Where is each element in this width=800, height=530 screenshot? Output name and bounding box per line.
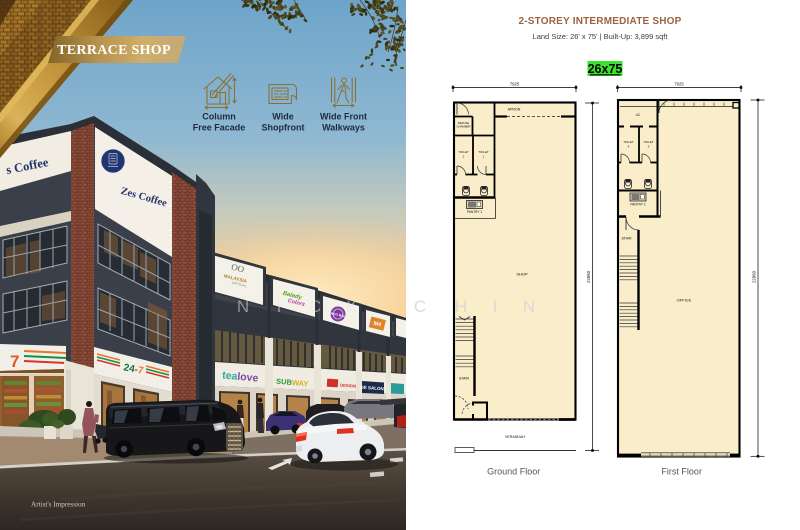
svg-text:PANTRY 2: PANTRY 2 [630, 203, 645, 207]
svg-text:OFFICE: OFFICE [677, 298, 692, 303]
svg-text:TOILET: TOILET [643, 140, 654, 144]
svg-text:7925: 7925 [674, 82, 684, 87]
svg-text:H: H [455, 297, 467, 316]
svg-text:TOILET: TOILET [623, 140, 634, 144]
svg-text:PANTRY 1: PANTRY 1 [467, 210, 482, 214]
svg-text:22860: 22860 [752, 270, 757, 283]
svg-text:7925: 7925 [510, 82, 520, 87]
svg-text:Ground Floor: Ground Floor [487, 467, 540, 477]
svg-text:VERANDAH: VERANDAH [505, 435, 525, 439]
svg-text:K: K [346, 297, 358, 316]
svg-text:TOILET: TOILET [458, 150, 469, 154]
svg-text:N: N [523, 297, 535, 316]
svg-text:SHOP: SHOP [516, 272, 528, 277]
svg-text:TOILET: TOILET [478, 150, 489, 154]
svg-text:APRON: APRON [508, 108, 521, 112]
svg-text:C: C [309, 297, 321, 316]
svg-text:I: I [493, 297, 498, 316]
svg-text:I: I [277, 297, 282, 316]
svg-text:22860: 22860 [586, 270, 591, 283]
svg-text:CHAMBER: CHAMBER [457, 125, 471, 129]
svg-text:C: C [414, 297, 426, 316]
svg-text:AC: AC [636, 113, 641, 117]
svg-text:N: N [237, 297, 249, 316]
svg-text:STAIR: STAIR [621, 237, 632, 241]
svg-text:STAIR: STAIR [459, 377, 470, 381]
svg-text:First Floor: First Floor [661, 467, 702, 477]
